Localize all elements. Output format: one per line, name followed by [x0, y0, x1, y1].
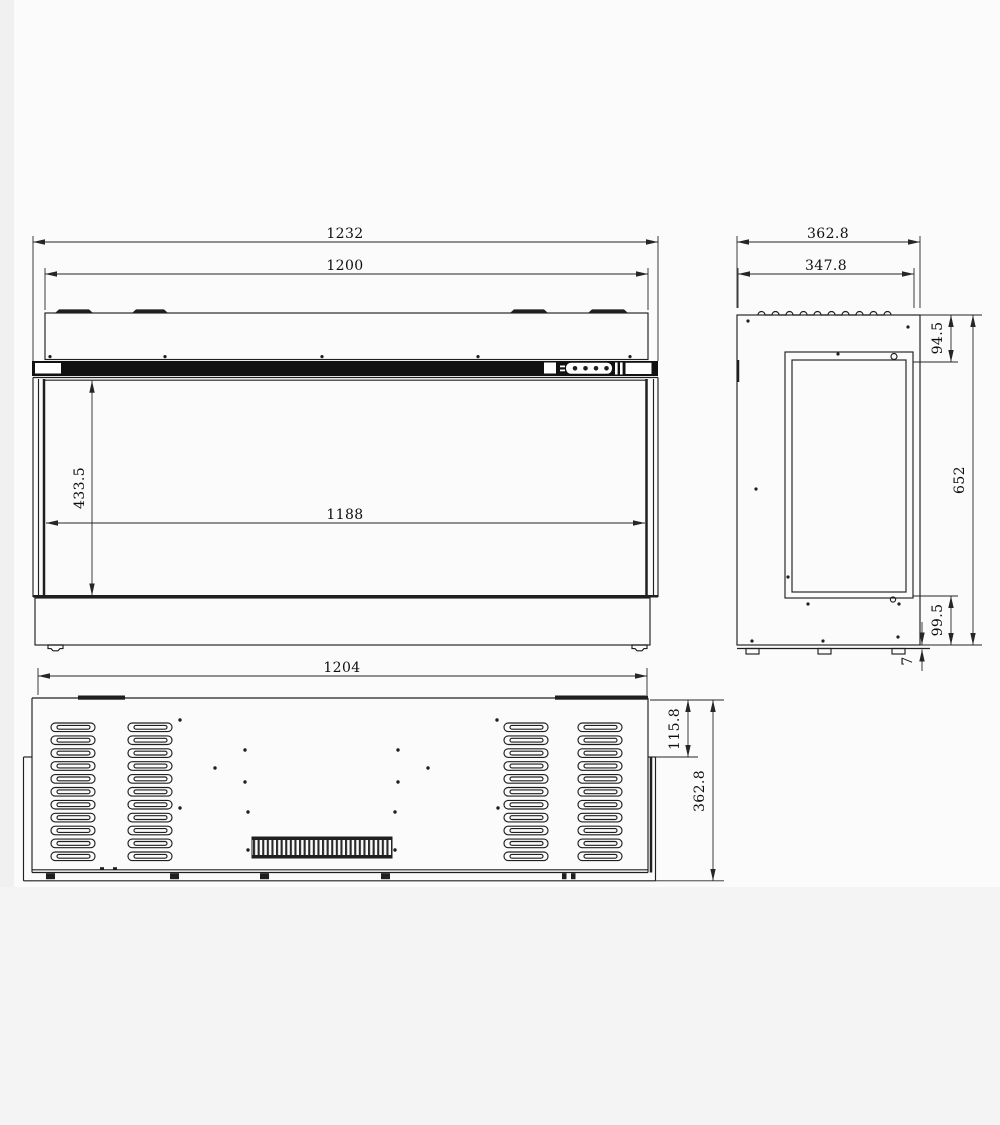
bottom-top-pad-left: [78, 696, 125, 700]
dim-label-side-overall-height: 652: [952, 466, 968, 494]
dim-label-bottom-overall-depth: 362.8: [692, 770, 708, 812]
heater-grille: [252, 837, 392, 858]
dim-label-front-body-width: 1200: [326, 258, 363, 274]
technical-drawing: 1232 1200: [0, 0, 1000, 1125]
dim-label-front-overall-width: 1232: [326, 226, 363, 242]
bottom-top-pad-right: [555, 696, 648, 700]
front-trim-bar: [32, 361, 658, 376]
dim-label-bottom-side-inset: 115.8: [667, 708, 683, 750]
trim-bar-left-inset: [35, 363, 61, 374]
dim-label-bottom-overall-width: 1204: [323, 660, 360, 676]
bottom-margin-strip: [0, 887, 1000, 1125]
dim-label-side-base-height: 99.5: [930, 604, 946, 637]
dim-label-side-body-depth: 347.8: [805, 258, 847, 274]
dim-label-side-top-inset: 94.5: [930, 322, 946, 355]
dim-label-side-overall-depth: 362.8: [807, 226, 849, 242]
dim-label-front-opening-height: 433.5: [72, 467, 88, 509]
drawing-page: 1232 1200: [0, 0, 1000, 1125]
dim-label-front-opening-width: 1188: [326, 507, 363, 523]
dim-label-side-bottom-lip: 7: [900, 656, 916, 665]
